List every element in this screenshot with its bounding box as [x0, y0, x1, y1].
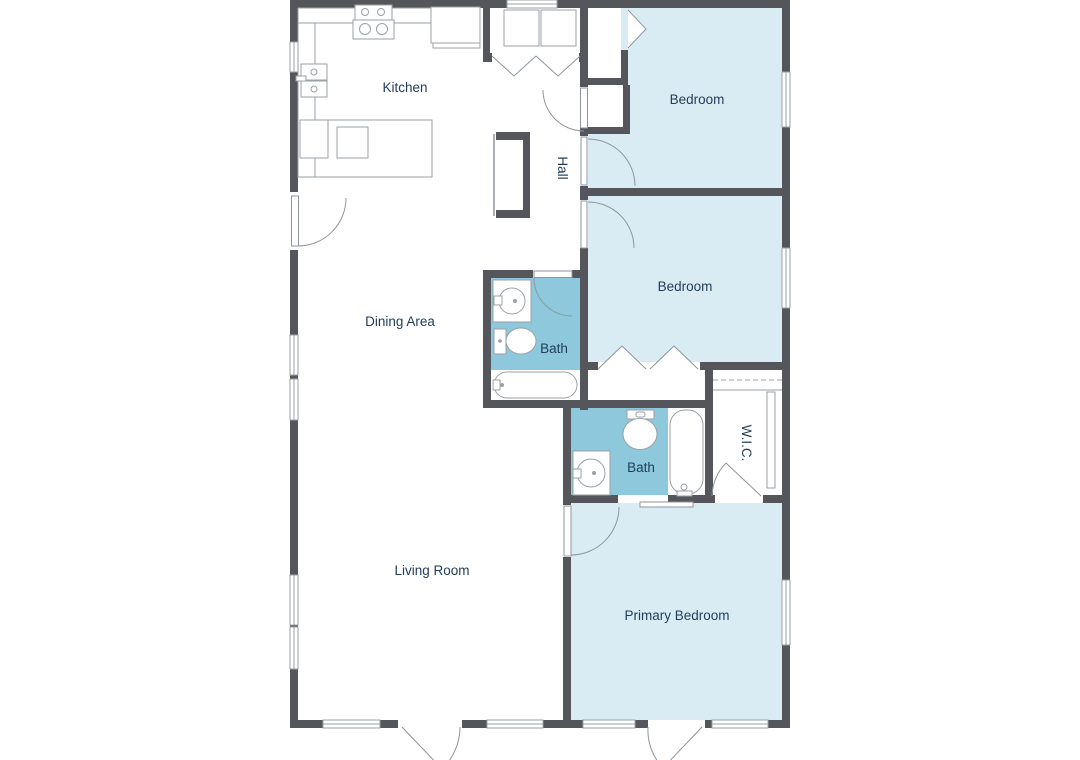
label-bath-hall: Bath	[540, 341, 568, 356]
window-dining-left-1	[290, 335, 298, 375]
wall-pantry-bottom	[496, 210, 530, 218]
hall-bath-toilet	[494, 328, 536, 354]
primary-bath-sliding-door	[640, 502, 693, 507]
primary-bath-vanity-sink	[573, 451, 610, 495]
primary-bath-toilet	[623, 410, 657, 450]
kitchen-peninsula	[315, 120, 432, 177]
label-bath-primary: Bath	[627, 460, 655, 475]
opening-primary-patio-door	[648, 720, 705, 728]
wall-kitchen-laundry	[483, 0, 490, 55]
kitchen-fridge	[431, 7, 480, 48]
window-living-bottom-2	[487, 720, 543, 728]
label-living-room: Living Room	[394, 563, 469, 578]
hall-bath-vanity-sink	[493, 280, 531, 322]
kitchen-range	[353, 5, 394, 39]
window-bedroom-middle-right	[782, 248, 790, 308]
pantry-front-line	[493, 134, 495, 216]
label-bedroom-top: Bedroom	[670, 92, 725, 107]
wall-bedroom-divider	[580, 188, 790, 196]
window-dining-left-2	[290, 379, 298, 420]
window-kitchen-left	[290, 42, 298, 72]
wall-closet2-right	[623, 85, 630, 134]
window-laundry-top	[507, 0, 557, 8]
opening-wic-door	[715, 495, 763, 503]
wall-closet1-stub	[621, 50, 628, 78]
window-primary-bottom-2	[712, 720, 768, 728]
label-dining-area: Dining Area	[365, 314, 435, 329]
wall-bath-divider	[483, 400, 713, 408]
hall-bath-tub	[493, 372, 577, 398]
label-kitchen: Kitchen	[382, 80, 427, 95]
label-bedroom-middle: Bedroom	[658, 279, 713, 294]
floor-plan-svg: Kitchen Hall Bedroom Bedroom Dining Area…	[0, 0, 1080, 760]
window-primary-right	[782, 580, 790, 645]
wall-closet1-bottom	[580, 78, 628, 85]
window-primary-bottom-1	[583, 720, 635, 728]
label-primary-bedroom: Primary Bedroom	[624, 608, 729, 623]
primary-bath-tub	[670, 410, 703, 496]
kitchen-peninsula-cabinet	[337, 127, 368, 158]
window-bedroom-top-right	[782, 72, 790, 127]
hall-closet-floor	[588, 85, 623, 127]
label-wic: W.I.C.	[739, 425, 754, 462]
wall-laundry-stub-left	[483, 53, 492, 62]
wall-pantry-right	[523, 132, 530, 218]
kitchen-sink	[296, 64, 327, 97]
bedroom-top-closet-floor	[588, 8, 621, 78]
opening-living-patio-door	[398, 720, 462, 728]
window-living-bottom-1	[323, 720, 380, 728]
window-living-left-1	[290, 575, 298, 625]
kitchen-appliance	[300, 120, 328, 158]
label-hall: Hall	[555, 156, 570, 179]
wall-living-primary	[563, 408, 571, 728]
window-living-left-2	[290, 627, 298, 669]
wall-hall-bath-left	[483, 270, 491, 408]
wall-closet-wic	[705, 362, 713, 503]
floor-plan-canvas: Kitchen Hall Bedroom Bedroom Dining Area…	[0, 0, 1080, 760]
